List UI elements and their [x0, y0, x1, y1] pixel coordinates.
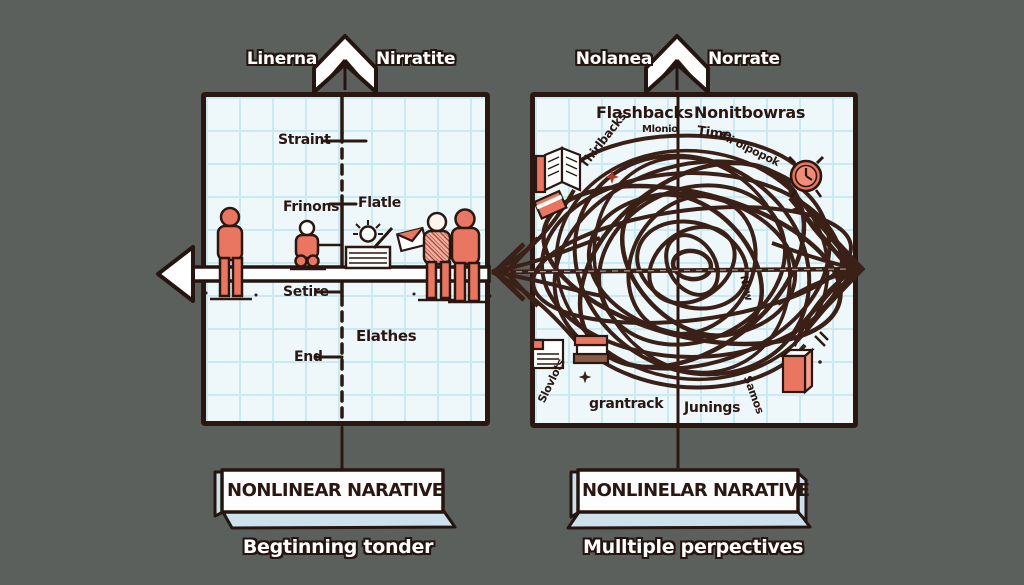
alarm-clock-icon [789, 157, 823, 197]
envelope-icon [397, 228, 426, 251]
standing-person-icon [448, 210, 492, 303]
timeline-label-setire: Setire [283, 284, 329, 300]
up-arrow-icon [646, 36, 708, 92]
tangle-label-junings: Junings [684, 400, 740, 416]
lightbulb-box-icon [346, 220, 392, 268]
open-book-icon [536, 148, 580, 192]
drawing-layer [0, 0, 1024, 585]
checkered-person-icon [413, 213, 457, 300]
tangle-label-mlonio: Mlonio [642, 124, 678, 135]
tangle-label-grantrack: grantrack [589, 396, 663, 412]
tilted-book-icon [534, 191, 566, 218]
illustration-canvas: Linerna Nirratite Nolanea Norrate Strain… [0, 0, 1024, 585]
timeline-label-straint: Straint [278, 132, 331, 148]
header-right-word2: Norrate [708, 49, 780, 69]
standing-person-icon [205, 208, 258, 299]
timeline-label-end: End [294, 349, 323, 365]
header-left-word1: Linerna [233, 49, 317, 69]
caption-left: Begtinning tonder [238, 536, 438, 558]
timeline-label-elathes: Elathes [356, 327, 416, 345]
timeline-label-flatle: Flatle [358, 195, 401, 211]
timeline-label-frinons: Frinons [283, 199, 339, 215]
header-left-word2: Nirratite [376, 49, 455, 69]
caption-right: Mulltiple perpectives [583, 536, 791, 558]
up-arrow-icon [314, 36, 376, 92]
banner-title-left: NONLINEAR NARATIVE [227, 480, 439, 501]
tangle-label-nonitbowras: Nonitbowras [694, 103, 805, 122]
banner-title-right: NONLINELAR NARATIVE [582, 480, 794, 501]
stacked-books-icon [574, 336, 608, 363]
header-right-word1: Nolanea [568, 49, 652, 69]
